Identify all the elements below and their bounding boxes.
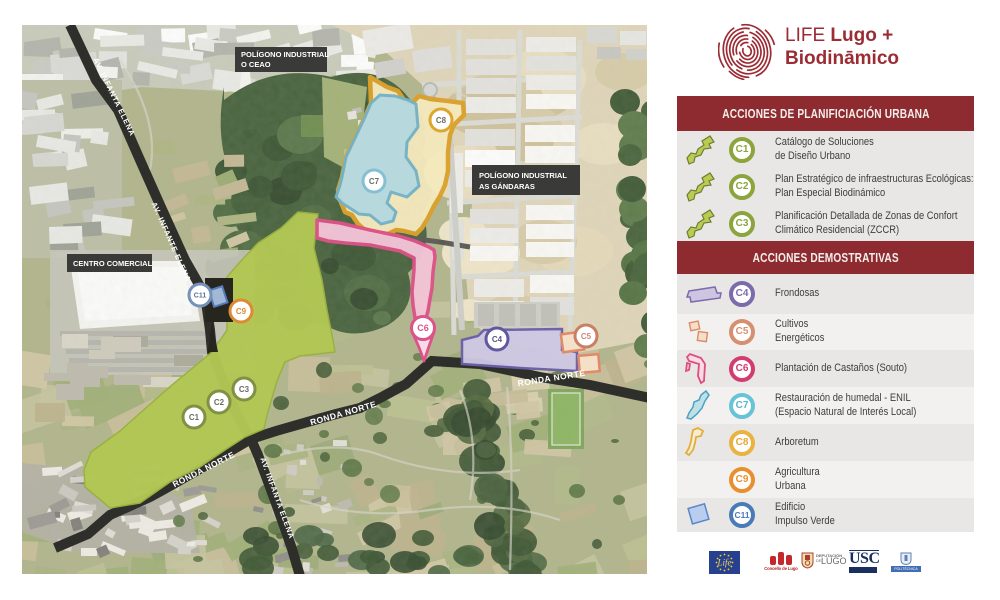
svg-text:C1: C1 — [189, 413, 200, 422]
svg-text:POLÍGONO INDUSTRIAL: POLÍGONO INDUSTRIAL — [479, 171, 567, 180]
svg-text:C7: C7 — [369, 177, 380, 186]
svg-text:C8: C8 — [436, 116, 447, 125]
svg-text:C4: C4 — [492, 335, 503, 344]
svg-text:Life: Life — [716, 558, 731, 568]
svg-text:CENTRO COMERCIAL: CENTRO COMERCIAL — [73, 259, 153, 268]
svg-text:C9: C9 — [236, 307, 247, 316]
svg-text:POLÍGONO INDUSTRIAL: POLÍGONO INDUSTRIAL — [241, 50, 329, 59]
svg-text:C5: C5 — [581, 332, 592, 341]
svg-text:C11: C11 — [194, 293, 207, 300]
svg-text:AS GÁNDARAS: AS GÁNDARAS — [479, 182, 535, 191]
svg-text:C2: C2 — [214, 398, 225, 407]
svg-text:O CEAO: O CEAO — [241, 60, 271, 69]
svg-text:C6: C6 — [417, 323, 429, 333]
svg-text:C3: C3 — [239, 385, 250, 394]
